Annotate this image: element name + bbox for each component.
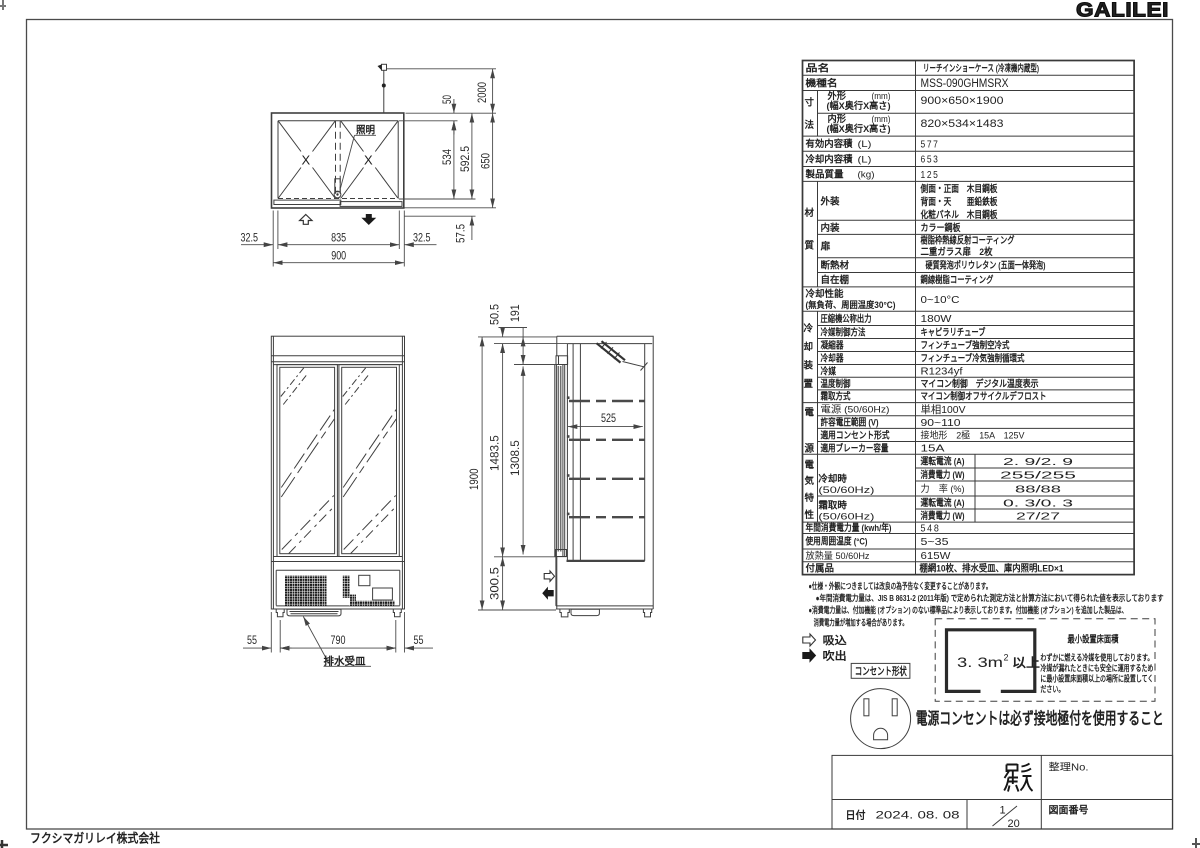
svg-text:180W: 180W: [921, 313, 952, 325]
svg-text:霜取方式: 霜取方式: [820, 391, 851, 403]
svg-text:排水受皿: 排水受皿: [324, 655, 366, 668]
svg-text:質: 質: [805, 240, 815, 252]
svg-text:キャピラリチューブ: キャピラリチューブ: [921, 326, 986, 338]
svg-text:50.5: 50.5: [487, 304, 501, 325]
svg-text:2000: 2000: [475, 82, 489, 103]
svg-text:消費電力量が増加する場合があります。: 消費電力量が増加する場合があります。: [814, 618, 908, 628]
svg-text:吸込: 吸込: [823, 633, 847, 647]
svg-text:548: 548: [921, 523, 941, 535]
svg-text:凝縮器: 凝縮器: [821, 339, 844, 351]
svg-text:年間消費電力量 (kwh/年): 年間消費電力量 (kwh/年): [806, 522, 892, 534]
svg-text:電: 電: [805, 459, 815, 471]
svg-text:カラー鋼板: カラー鋼板: [921, 222, 961, 234]
svg-text:消費電力 (W): 消費電力 (W): [921, 469, 965, 481]
svg-text:材: 材: [804, 207, 815, 219]
svg-text:(無負荷、周囲温度30°C): (無負荷、周囲温度30°C): [806, 299, 896, 310]
svg-text:図面番号: 図面番号: [1049, 804, 1089, 817]
svg-text:R1234yf: R1234yf: [921, 366, 963, 378]
svg-text:樹脂枠熱線反射コーティング: 樹脂枠熱線反射コーティング: [921, 235, 1015, 247]
svg-text:592.5: 592.5: [458, 146, 472, 172]
svg-text:50: 50: [440, 95, 454, 104]
svg-text:照明: 照明: [356, 124, 375, 136]
svg-text:リーチインショーケース (冷凍機内蔵型): リーチインショーケース (冷凍機内蔵型): [923, 63, 1039, 75]
svg-text:製品質量: 製品質量: [805, 168, 844, 180]
svg-text:コンセント形状: コンセント形状: [855, 664, 907, 677]
svg-text:0. 3/0. 3: 0. 3/0. 3: [1003, 497, 1073, 509]
svg-text:化粧パネル 木目鋼板: 化粧パネル 木目鋼板: [921, 209, 998, 221]
svg-text:以上: 以上: [1012, 655, 1041, 670]
svg-text:3. 3m: 3. 3m: [957, 654, 1003, 670]
svg-text:冷却内容積: 冷却内容積: [806, 153, 853, 165]
svg-text:X: X: [302, 153, 311, 168]
svg-text:GALILEI: GALILEI: [1076, 0, 1169, 22]
svg-text:マイコン制御オフサイクルデフロスト: マイコン制御オフサイクルデフロスト: [921, 391, 1047, 403]
svg-text:温度制御: 温度制御: [821, 378, 851, 390]
svg-text:(幅X奥行X高さ): (幅X奥行X高さ): [827, 123, 891, 135]
svg-text:57.5: 57.5: [454, 224, 468, 243]
svg-text:653: 653: [921, 154, 940, 166]
svg-text:300.5: 300.5: [487, 567, 501, 600]
svg-text:適用コンセント形式: 適用コンセント形式: [821, 429, 890, 441]
svg-text:運転電流 (A): 運転電流 (A): [921, 497, 965, 509]
svg-text:フィンチューブ強制空冷式: フィンチューブ強制空冷式: [921, 339, 1010, 351]
svg-text:寸: 寸: [805, 96, 815, 108]
svg-text:2. 9/2. 9: 2. 9/2. 9: [1003, 456, 1073, 468]
svg-text:(kg): (kg): [858, 169, 875, 180]
svg-text:20: 20: [1008, 818, 1020, 830]
svg-text:単相100V: 単相100V: [921, 403, 966, 416]
svg-text:使用周囲温度 (°C): 使用周囲温度 (°C): [805, 536, 868, 548]
svg-text:冷却性能: 冷却性能: [806, 288, 844, 300]
svg-text:534: 534: [440, 149, 454, 165]
svg-text:に最小設置床面積以上の場所に設置してく: に最小設置床面積以上の場所に設置してく: [1040, 673, 1153, 683]
svg-text:●年間消費電力量は、JIS B 8631-2 (2011年版: ●年間消費電力量は、JIS B 8631-2 (2011年版) で定められた測定…: [816, 593, 1164, 603]
svg-text:自在棚: 自在棚: [821, 274, 850, 286]
svg-text:X: X: [364, 153, 373, 168]
svg-text:気: 気: [805, 475, 815, 487]
svg-text:フクシマガリレイ株式会社: フクシマガリレイ株式会社: [30, 831, 160, 846]
svg-text:特: 特: [805, 492, 815, 504]
svg-text:圧縮機公称出力: 圧縮機公称出力: [821, 313, 872, 325]
svg-text:冷媒が漏れたときにも安全に運用するため: 冷媒が漏れたときにも安全に運用するため: [1040, 663, 1153, 673]
svg-text:置: 置: [804, 378, 814, 390]
svg-text:835: 835: [331, 230, 346, 244]
svg-text:日付: 日付: [846, 809, 866, 822]
svg-text:55: 55: [247, 633, 257, 647]
svg-text:MSS-090GHMSRX: MSS-090GHMSRX: [921, 78, 1009, 90]
svg-text:放熱量 50/60Hz: 放熱量 50/60Hz: [806, 550, 870, 562]
svg-text:冷媒制御方法: 冷媒制御方法: [821, 326, 866, 338]
svg-text:運転電流 (A): 運転電流 (A): [921, 456, 965, 468]
svg-text:(50/60Hz): (50/60Hz): [818, 485, 874, 496]
svg-text:27/27: 27/27: [1016, 510, 1060, 522]
svg-text:外装: 外装: [820, 195, 840, 207]
svg-text:615W: 615W: [921, 550, 951, 562]
svg-text:32.5: 32.5: [241, 230, 259, 244]
svg-text:(幅X奥行X高さ): (幅X奥行X高さ): [827, 100, 891, 112]
svg-text:1900: 1900: [467, 468, 481, 490]
svg-text:電源 (50/60Hz): 電源 (50/60Hz): [821, 405, 890, 416]
svg-text:断熱材: 断熱材: [821, 260, 850, 272]
svg-text:却: 却: [804, 341, 814, 353]
svg-text:1: 1: [1000, 805, 1006, 817]
svg-text:背面・天 亜鉛鉄板: 背面・天 亜鉛鉄板: [921, 196, 998, 208]
svg-text:ださい。: ださい。: [1040, 684, 1064, 694]
svg-text:電源コンセントは必ず接地極付を使用すること: 電源コンセントは必ず接地極付を使用すること: [916, 708, 1164, 728]
svg-text:最小設置床面積: 最小設置床面積: [1068, 633, 1119, 645]
svg-text:整理No.: 整理No.: [1049, 761, 1089, 774]
svg-text:性: 性: [805, 509, 815, 521]
svg-text:2: 2: [1004, 653, 1009, 663]
svg-text:650: 650: [479, 153, 493, 169]
svg-text:(50/60Hz): (50/60Hz): [818, 512, 874, 523]
svg-text:577: 577: [921, 139, 940, 151]
svg-text:適用ブレーカー容量: 適用ブレーカー容量: [821, 442, 889, 454]
svg-text:機種名: 機種名: [806, 78, 838, 90]
svg-text:二重ガラス扉 2枚: 二重ガラス扉 2枚: [921, 246, 993, 258]
svg-text:有効内容積: 有効内容積: [806, 138, 853, 150]
svg-text:32.5: 32.5: [413, 230, 431, 244]
svg-text:内装: 内装: [821, 222, 840, 234]
svg-text:790: 790: [331, 633, 346, 647]
svg-text:5~35: 5~35: [921, 536, 949, 548]
svg-text:90~110: 90~110: [921, 417, 961, 429]
svg-text:わずかに燃える冷媒を使用しております。: わずかに燃える冷媒を使用しております。: [1040, 652, 1153, 662]
svg-text:冷媒: 冷媒: [821, 365, 837, 377]
svg-text:2024. 08. 08: 2024. 08. 08: [876, 810, 960, 822]
svg-text:吹出: 吹出: [823, 649, 847, 663]
svg-text:55: 55: [414, 633, 424, 647]
svg-text:鋼線樹脂コーティング: 鋼線樹脂コーティング: [920, 274, 994, 286]
svg-text:●消費電力量は、付加機能 (オプション) のない標準品により: ●消費電力量は、付加機能 (オプション) のない標準品により表示しております。付…: [809, 605, 1128, 615]
svg-text:側面・正面 木目鋼板: 側面・正面 木目鋼板: [920, 183, 998, 195]
svg-text:扉: 扉: [819, 241, 831, 253]
svg-text:0~10°C: 0~10°C: [921, 294, 960, 306]
svg-text:法: 法: [805, 119, 815, 131]
svg-text:525: 525: [601, 411, 616, 425]
svg-text:源: 源: [805, 443, 815, 455]
svg-text:接地形 2極 15A 125V: 接地形 2極 15A 125V: [921, 429, 1026, 441]
svg-text:125: 125: [921, 169, 940, 181]
svg-text:冷却時: 冷却時: [818, 473, 847, 485]
svg-text:191: 191: [508, 304, 522, 322]
svg-text:900: 900: [331, 248, 346, 262]
svg-text:許容電圧範囲 (V): 許容電圧範囲 (V): [821, 416, 879, 428]
svg-text:1308.5: 1308.5: [508, 440, 522, 476]
svg-text:棚網10枚、排水受皿、庫内照明LED×1: 棚網10枚、排水受皿、庫内照明LED×1: [920, 563, 1065, 575]
svg-text:15A: 15A: [921, 443, 945, 455]
svg-text:88/88: 88/88: [1015, 483, 1061, 495]
svg-text:255/255: 255/255: [1000, 469, 1076, 481]
svg-text:力 率 (%): 力 率 (%): [921, 483, 965, 495]
svg-text:フィンチューブ冷気強制循環式: フィンチューブ冷気強制循環式: [921, 352, 1025, 364]
svg-text:霜取時: 霜取時: [817, 500, 847, 512]
svg-text:900×650×1900: 900×650×1900: [921, 95, 1004, 107]
svg-text:マイコン制御 デジタル温度表示: マイコン制御 デジタル温度表示: [921, 378, 1039, 390]
svg-text:820×534×1483: 820×534×1483: [921, 118, 1004, 130]
svg-text:1483.5: 1483.5: [487, 435, 501, 471]
svg-text:品名: 品名: [806, 63, 830, 75]
svg-text:電: 電: [805, 407, 815, 419]
svg-text:●仕様・外観につきましては改良の為予告なく変更することがあり: ●仕様・外観につきましては改良の為予告なく変更することがあります。: [809, 581, 992, 591]
svg-text:硬質発泡ポリウレタン (五面一体発泡): 硬質発泡ポリウレタン (五面一体発泡): [926, 260, 1046, 272]
svg-text:装: 装: [803, 359, 814, 371]
svg-text:(L): (L): [858, 139, 872, 150]
svg-text:冷却器: 冷却器: [821, 352, 844, 364]
svg-text:(L): (L): [858, 154, 872, 165]
svg-text:付属品: 付属品: [806, 563, 835, 575]
svg-text:消費電力 (W): 消費電力 (W): [921, 510, 965, 522]
svg-text:冷: 冷: [804, 323, 814, 335]
